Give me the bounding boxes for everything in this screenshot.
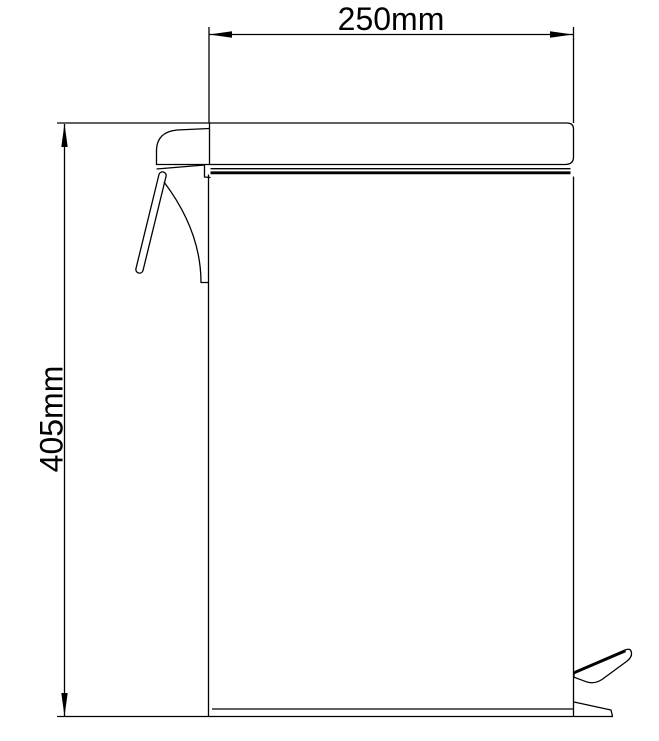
- bin-drawing: [140, 123, 632, 717]
- lid-hinge-housing: [157, 129, 210, 165]
- v-dim-arrow-top: [61, 124, 67, 148]
- h-dim-arrow-right: [550, 31, 573, 37]
- horizontal-dimension: 250mm: [209, 1, 574, 123]
- hinge-underside-line: [157, 165, 205, 169]
- diagram-page: 250mm 405mm: [0, 0, 659, 741]
- technical-drawing-canvas: 250mm 405mm: [0, 0, 659, 741]
- v-dim-label: 405mm: [34, 366, 70, 473]
- foot-pedal: [574, 649, 632, 683]
- h-dim-arrow-left: [209, 31, 232, 37]
- rim-step-tab: [205, 165, 211, 178]
- v-dim-arrow-bottom: [61, 693, 67, 717]
- pedal-base-wedge: [574, 702, 613, 716]
- h-dim-label: 250mm: [338, 1, 445, 37]
- pedal-lever-rod-inner: [140, 176, 163, 270]
- bin-lid: [210, 123, 574, 165]
- lever-motion-arc: [164, 182, 209, 283]
